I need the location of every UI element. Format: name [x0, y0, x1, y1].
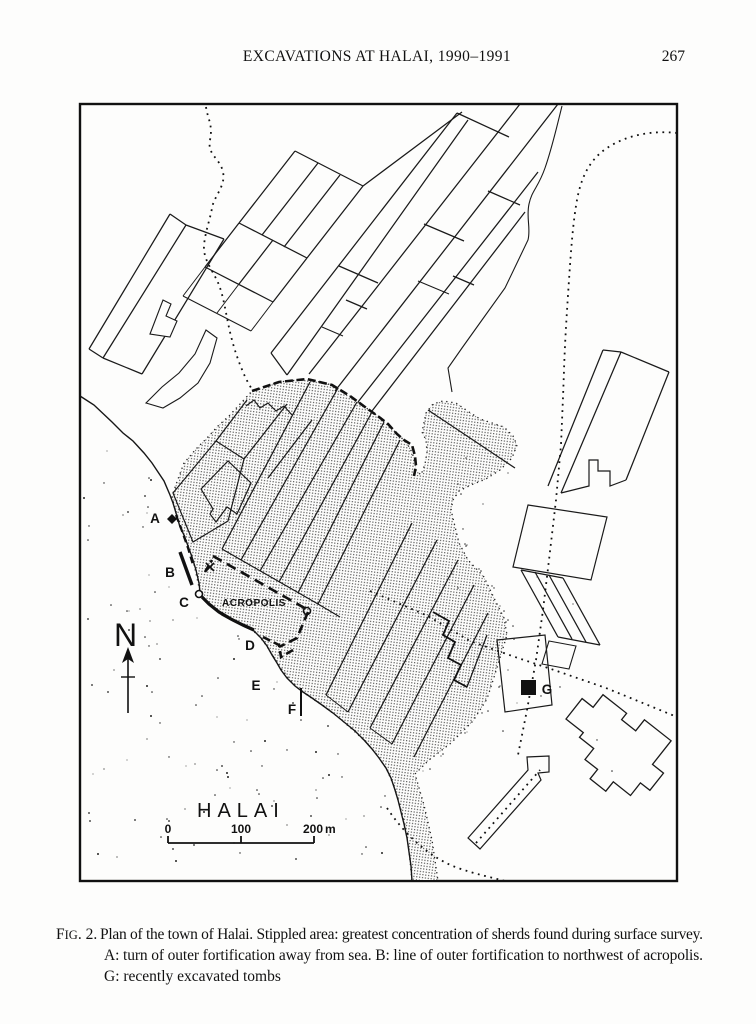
- svg-text:267: 267: [662, 48, 686, 65]
- svg-text:F: F: [288, 702, 296, 717]
- svg-text:100: 100: [231, 822, 251, 836]
- svg-text:0: 0: [165, 822, 172, 836]
- svg-text:Plan of the town of Halai. Sti: Plan of the town of Halai. Stippled area…: [100, 926, 703, 943]
- svg-text:EXCAVATIONS AT HALAI, 1990–199: EXCAVATIONS AT HALAI, 1990–1991: [243, 48, 511, 65]
- svg-text:200: 200: [303, 822, 323, 836]
- svg-text:HALAI: HALAI: [197, 800, 285, 822]
- svg-text:G: recently excavated tombs: G: recently excavated tombs: [104, 968, 281, 985]
- svg-text:C: C: [179, 595, 189, 610]
- svg-text:B: B: [165, 565, 175, 580]
- svg-text:D: D: [245, 638, 255, 653]
- svg-text:m: m: [325, 822, 336, 836]
- svg-text:A: turn of outer fortification: A: turn of outer fortification away from…: [104, 947, 703, 964]
- svg-text:FIG. 2.: FIG. 2.: [56, 926, 97, 943]
- svg-text:G: G: [542, 682, 553, 697]
- svg-text:ACROPOLIS: ACROPOLIS: [222, 598, 286, 609]
- svg-text:N: N: [114, 617, 137, 653]
- svg-text:E: E: [251, 678, 260, 693]
- svg-text:A: A: [150, 511, 160, 526]
